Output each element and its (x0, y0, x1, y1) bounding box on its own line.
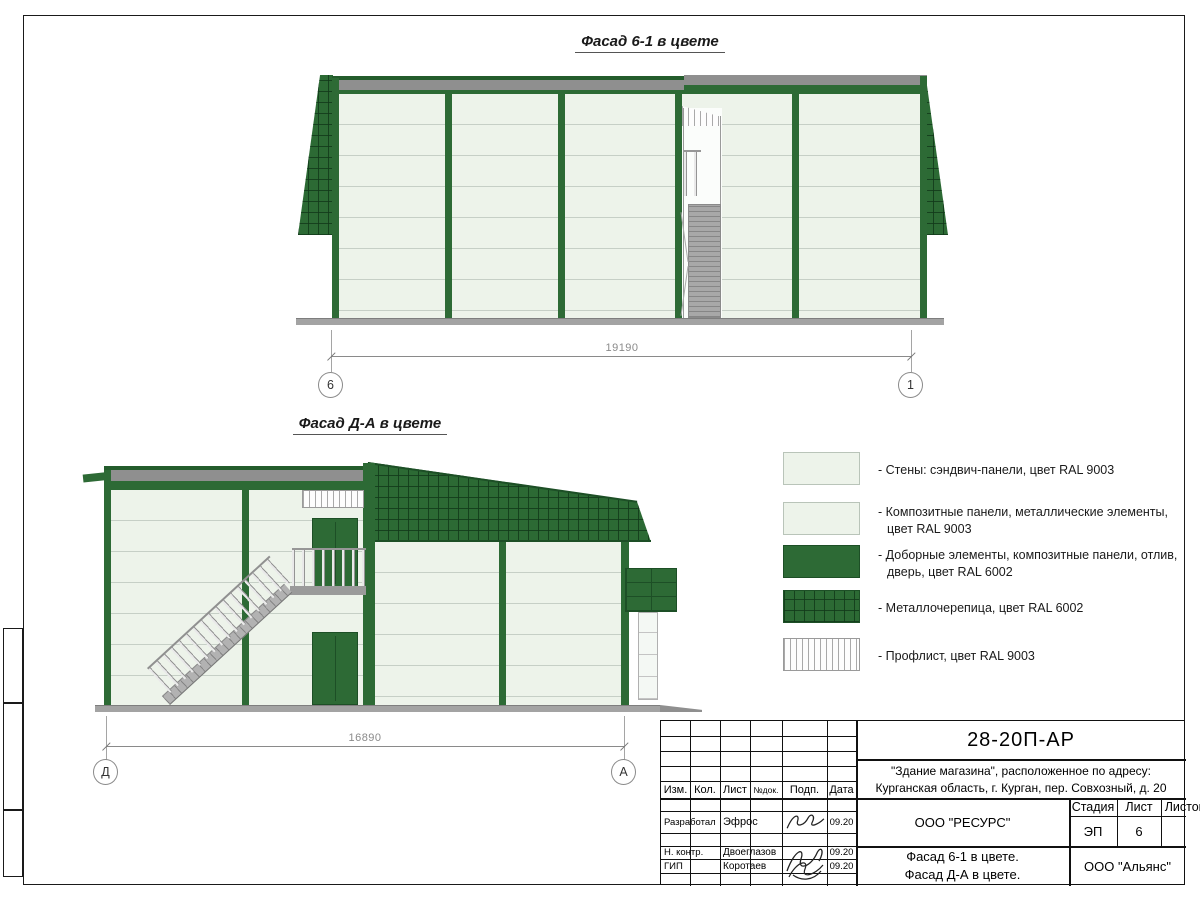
row-date: 09.20 (827, 811, 856, 833)
row-date: 09.20 (827, 846, 856, 859)
legend-swatch-roof-tiles (783, 590, 860, 623)
legend-swatch-trim-elements (783, 545, 860, 578)
corner-mullion-right (920, 76, 927, 318)
sheet-label: Лист (1117, 798, 1161, 816)
dimension-value: 19190 (530, 342, 714, 354)
roof-hip-left (298, 75, 333, 235)
facade-d-a-title: Фасад Д-А в цвете (285, 415, 455, 435)
sheet-title: Фасад 6-1 в цвете. Фасад Д-А в цвете. (856, 846, 1069, 886)
grid-line (661, 736, 857, 737)
project-line1: "Здание магазина", расположенное по адре… (861, 763, 1181, 780)
drawing-sheet: Фасад 6-1 в цвете 19190 6 (0, 0, 1200, 900)
grid-line (720, 721, 721, 886)
org-middle: ООО "РЕСУРС" (856, 798, 1069, 846)
axis-circle-d: Д (93, 759, 118, 785)
grid-line (661, 833, 857, 834)
parapet-band (684, 85, 927, 94)
axis-circle-1: 1 (898, 372, 923, 398)
legend-label: - Металлочерепица, цвет RAL 6002 (878, 600, 1188, 617)
dimension-line (106, 746, 625, 747)
stage-value: ЭП (1069, 816, 1117, 846)
facade-d-a-title-text: Фасад Д-А в цвете (293, 415, 447, 435)
col-izm: Изм. (661, 781, 690, 798)
ground-line (95, 705, 660, 712)
dimension-line (331, 356, 912, 357)
row-name: Коротаев (723, 859, 782, 873)
sheet-title-line2: Фасад Д-А в цвете. (905, 866, 1021, 884)
col-podp: Подп. (782, 781, 827, 798)
margin-stamp-box (3, 810, 23, 877)
balcony-slab (290, 586, 366, 595)
legend-label: - Профлист, цвет RAL 9003 (878, 648, 1188, 665)
ground-slope (660, 705, 702, 712)
legend-item: - Профлист, цвет RAL 9003 (783, 638, 1183, 682)
sheet-title-line1: Фасад 6-1 в цвете. (906, 848, 1019, 866)
org-bottom: ООО "Альянс" (1069, 846, 1186, 886)
grid-line (661, 766, 857, 767)
facade-6-1-title: Фасад 6-1 в цвете (500, 33, 800, 53)
door-leaf-split (335, 636, 336, 701)
row-date: 09.20 (827, 859, 856, 873)
col-ndok: №док. (750, 781, 782, 798)
door-lower (312, 632, 358, 705)
legend-swatch-walls (783, 452, 860, 485)
stage-label: Стадия (1069, 798, 1117, 816)
extension-line (911, 330, 912, 372)
parapet-flashing (104, 470, 370, 481)
axis-circle-6: 6 (318, 372, 343, 398)
row-role: Разработал (664, 811, 720, 833)
legend-item: - Композитные панели, металлические элем… (783, 502, 1183, 546)
stair-steps (688, 204, 721, 318)
sheet-value: 6 (1117, 816, 1161, 846)
extension-line (624, 716, 625, 760)
wall-mullion (445, 94, 452, 318)
parapet-flashing (684, 75, 927, 85)
parapet-flashing (332, 80, 684, 90)
margin-stamp-box (3, 703, 23, 810)
facade-6-1-drawing (296, 74, 944, 326)
grid-line (661, 751, 857, 752)
corner-mullion-left (104, 470, 111, 705)
signature-mark (783, 841, 827, 883)
row-name: Двоеглазов (723, 846, 782, 859)
axis-circle-a: А (611, 759, 636, 785)
facade-d-a-drawing (75, 455, 707, 717)
grid-line (661, 798, 857, 800)
grid-line (856, 759, 1186, 761)
legend-swatch-composite (783, 502, 860, 535)
title-block: Изм. Кол. Лист №док. Подп. Дата Разработ… (660, 720, 1185, 885)
ground-line (296, 318, 944, 325)
extension-line (106, 716, 107, 760)
grid-line (661, 873, 857, 874)
wall-mullion (499, 542, 506, 705)
row-role: ГИП (664, 859, 720, 873)
legend-item: - Металлочерепица, цвет RAL 6002 (783, 590, 1183, 634)
wall-mullion (558, 94, 565, 318)
legend-swatch-prof-sheet (783, 638, 860, 671)
col-data: Дата (827, 781, 856, 798)
support-pillar (638, 612, 658, 700)
wall-panels (332, 94, 927, 318)
row-role: Н. контр. (664, 846, 720, 859)
col-list: Лист (720, 781, 750, 798)
signature-mark (784, 811, 826, 833)
sheets-label: Листов (1161, 798, 1200, 816)
facade-6-1-title-text: Фасад 6-1 в цвете (575, 33, 724, 53)
legend-label: - Стены: сэндвич-панели, цвет RAL 9003 (878, 462, 1188, 479)
parapet-band (104, 481, 370, 490)
roof-metal-tiles (368, 462, 651, 542)
project-line2: Курганская область, г. Курган, пер. Совх… (861, 780, 1181, 797)
project-description: "Здание магазина", расположенное по адре… (861, 763, 1181, 797)
extension-line (331, 330, 332, 372)
sign-box (625, 568, 677, 612)
wall-mullion (675, 94, 682, 318)
stair-railing (684, 150, 701, 196)
balcony-railing (292, 548, 366, 588)
doc-number: 28-20П-АР (856, 721, 1186, 759)
legend-label: - Доборные элементы, композитные панели,… (878, 547, 1188, 580)
row-name: Эфрос (723, 811, 781, 833)
col-kol: Кол. (690, 781, 720, 798)
legend-item: - Доборные элементы, композитные панели,… (783, 545, 1183, 589)
corner-mullion-left (332, 78, 339, 318)
dimension-value: 16890 (270, 732, 460, 744)
legend-item: - Стены: сэндвич-панели, цвет RAL 9003 (783, 452, 1183, 496)
margin-stamp-box (3, 628, 23, 703)
corner-mullion-right (621, 542, 629, 705)
wall-mullion (792, 94, 799, 318)
entrance-canopy (302, 490, 364, 508)
legend-label: - Композитные панели, металлические элем… (878, 504, 1188, 537)
legend: - Стены: сэндвич-панели, цвет RAL 9003 -… (783, 448, 1193, 683)
